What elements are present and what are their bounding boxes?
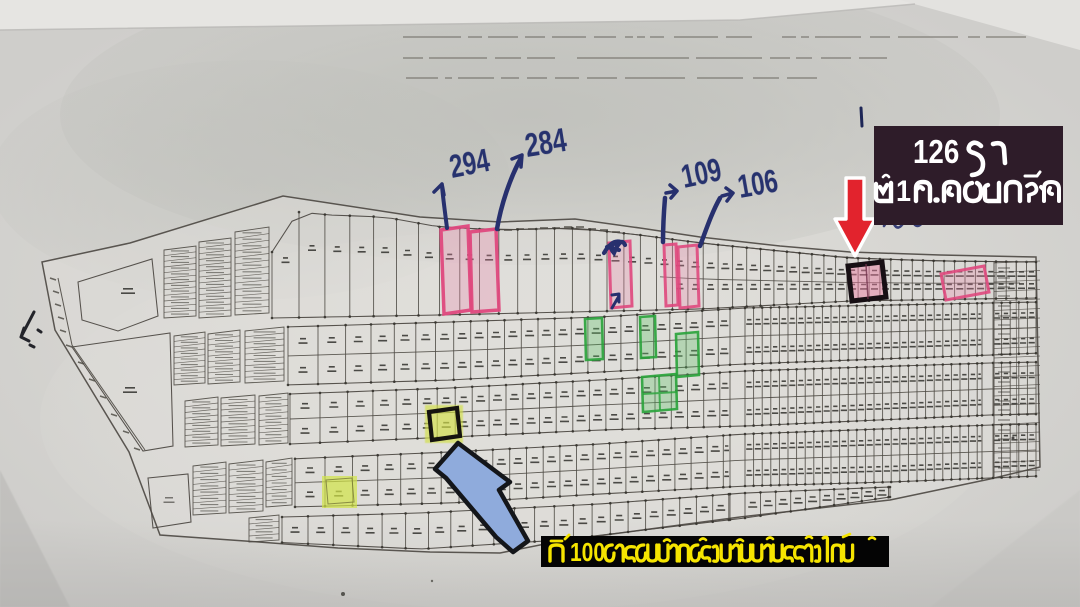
svg-text:100: 100 <box>570 538 605 568</box>
svg-text:1: 1 <box>896 175 911 209</box>
svg-text:126: 126 <box>913 134 959 171</box>
svg-text:294: 294 <box>447 142 493 185</box>
svg-text:284: 284 <box>522 121 569 165</box>
svg-text:106: 106 <box>735 163 781 206</box>
